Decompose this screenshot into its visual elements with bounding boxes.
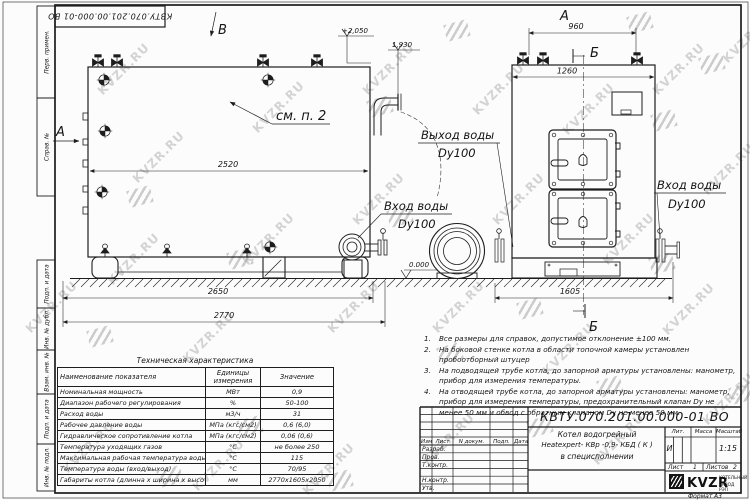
spec-header-value: Значение (261, 368, 334, 387)
section-letter-b-bottom: Б (589, 320, 598, 335)
spec-cell: не более 250 (261, 442, 334, 453)
ground-hatch (72, 279, 665, 287)
product-name-line3: в специсполнении (530, 452, 664, 461)
tb-row-razrab: Разраб. (422, 446, 446, 453)
note-item: 2.На боковой стенке котла в области топо… (424, 345, 740, 365)
note-item: 1.Все размеры для справок, допустимое от… (424, 334, 740, 344)
product-name-line2: Heatexpert- КВр -0,9- КБД ( К ) (530, 441, 664, 449)
view-letter-a-side: А (55, 125, 65, 140)
company-logo-icon (669, 474, 684, 489)
tb-lit-label: Лит. (666, 429, 690, 435)
spec-row: Габариты котла (длинна х ширина х высота… (58, 475, 334, 486)
elev-step: 1,930 (392, 41, 413, 49)
spec-cell: 31 (261, 409, 334, 420)
elev-zero: 0.000 (409, 261, 430, 269)
note-text: Все размеры для справок, допустимое откл… (439, 334, 740, 344)
product-name-line1: Котел водогрейный (530, 430, 664, 439)
tb-sheets-value: 2 (733, 464, 737, 471)
spec-cell: Номинальная мощность (58, 387, 206, 398)
dim-2520: 2520 (218, 160, 238, 169)
spec-cell: м3/ч (206, 409, 261, 420)
tb-sheets-label: Листов (706, 464, 728, 471)
spec-cell: Диапазон рабочего регулирования (58, 398, 206, 409)
spec-cell: 0,6 (6,0) (261, 420, 334, 431)
spec-row: Гидравлическое сопротивление котлаМПа (к… (58, 431, 334, 442)
format-value: А3 (714, 493, 722, 500)
spec-cell: Рабочее давление воды (58, 420, 206, 431)
tb-sheet-value: 1 (693, 464, 697, 471)
water-inlet-side-label: Вход воды (384, 199, 448, 213)
view-letter-b-top: В (218, 23, 227, 38)
door-lower (549, 190, 620, 247)
tb-row-tkontr: Т.контр. (422, 462, 448, 469)
company-name-line2: ЗАВОД РЭП (719, 483, 741, 493)
company-name-line1: КОТЕЛЬНЫЙ (719, 476, 741, 481)
spec-cell: МВт (206, 387, 261, 398)
tb-row-prov: Пров. (422, 454, 439, 461)
spec-row: Расход водым3/ч31 (58, 409, 334, 420)
door-upper (549, 130, 620, 189)
spec-header-row: Наименование показателя Единицы измерени… (58, 368, 334, 387)
tb-row-nkontr: Н.контр. (422, 477, 449, 484)
frame-label: Подп. и дата (45, 264, 51, 304)
dim-2650: 2650 (208, 287, 228, 296)
elev-top: +2,050 (342, 27, 368, 35)
pipe-callouts: Выход воды Dy100 Вход воды Dy100 Вход во… (358, 128, 726, 247)
drawing-sheet: KVZR.RUKVZR.RUKVZR.RUKVZR.RUKVZR.RUKVZR.… (0, 0, 750, 500)
top-stamp-number: КВТУ.070.201.00.000-01 ВО (48, 12, 172, 21)
spec-row: Максимальная рабочая температура воды°С1… (58, 453, 334, 464)
note-text: На боковой стенке котла в области топочн… (439, 345, 740, 365)
water-inlet-front-label: Вход воды (657, 178, 721, 192)
spec-cell: 115 (261, 453, 334, 464)
spec-cell: °С (206, 453, 261, 464)
spec-table: Наименование показателя Единицы измерени… (57, 367, 334, 486)
ground-line (70, 279, 672, 288)
blower-fan (428, 224, 487, 279)
title-block-doc-number: КВТУ.070.201.00.000-01 ВО (530, 409, 739, 424)
spec-cell: 2770х1605х2050 (261, 475, 334, 486)
spec-cell: 0,9 (261, 387, 334, 398)
tb-col-podp: Подп. (491, 439, 512, 445)
note-number: 2. (424, 345, 439, 365)
water-inlet-front-dn: Dy100 (668, 197, 706, 211)
spec-cell: °С (206, 464, 261, 475)
spec-cell: Гидравлическое сопротивление котла (58, 431, 206, 442)
notes-block: 1.Все размеры для справок, допустимое от… (424, 334, 740, 419)
spec-table-title: Техническая характеристика (57, 356, 333, 365)
tb-sheet-label: Лист (668, 464, 683, 471)
front-pipe-left (495, 229, 504, 262)
spec-cell: Температура воды (вход/выход) (58, 464, 206, 475)
tb-col-izm: Изм (421, 439, 432, 445)
spec-header-units: Единицы измерения (206, 368, 261, 387)
tb-col-data: Дата (514, 439, 527, 445)
front-view-dimensions: А 960 Б 1260 1605 Б (495, 9, 673, 335)
spec-table-wrap: Техническая характеристика Наименование … (57, 356, 333, 486)
tb-lit-value: И (666, 444, 673, 453)
water-outlet-label: Выход воды (421, 128, 494, 142)
spec-cell: 70/95 (261, 464, 334, 475)
spec-cell: 50-100 (261, 398, 334, 409)
spec-cell: °С (206, 442, 261, 453)
note-number: 1. (424, 334, 439, 344)
frame-label: Перв. примен. (45, 30, 51, 74)
water-outlet-dn: Dy100 (438, 146, 476, 160)
section-letter-b-top: Б (590, 46, 599, 61)
dim-1260: 1260 (557, 67, 577, 76)
spec-row: Температура воды (вход/выход)°С70/95 (58, 464, 334, 475)
spec-cell: МПа (кгс/см2) (206, 431, 261, 442)
spec-cell: мм (206, 475, 261, 486)
side-view (83, 55, 441, 278)
spec-cell: Максимальная рабочая температура воды (58, 453, 206, 464)
tb-col-list: Лист (433, 439, 452, 445)
tb-row-utv: Утв. (422, 485, 435, 492)
front-view (428, 53, 680, 315)
dim-960: 960 (568, 22, 583, 31)
spec-table-body: Номинальная мощностьМВт0,9Диапазон рабоч… (58, 387, 334, 486)
spec-row: Температура уходящих газов°Сне более 250 (58, 442, 334, 453)
tb-col-dokum: N докум. (454, 439, 489, 445)
see-note-callout: см. п. 2 (276, 109, 326, 124)
notes-list: 1.Все размеры для справок, допустимое от… (424, 334, 740, 418)
spec-cell: Габариты котла (длинна х ширина х высота… (58, 475, 206, 486)
spec-header-name: Наименование показателя (58, 368, 206, 387)
spec-cell: 0,06 (0,6) (261, 431, 334, 442)
frame-label: Инв. № дубл. (45, 309, 51, 349)
frame-label: Подп. и дата (45, 399, 51, 439)
spec-cell: Расход воды (58, 409, 206, 420)
note-number: 3. (424, 366, 439, 386)
note-item: 3.На подводящей трубе котла, до запорной… (424, 366, 740, 386)
tb-scale-label: Масштаб (716, 429, 740, 435)
water-inlet-side-dn: Dy100 (398, 217, 436, 231)
spec-cell: % (206, 398, 261, 409)
frame-label: Справ. № (45, 133, 51, 161)
spec-row: Диапазон рабочего регулирования%50-100 (58, 398, 334, 409)
spec-row: Рабочее давление водыМПа (кгс/см2)0,6 (6… (58, 420, 334, 431)
format-label: Формат (688, 493, 712, 500)
spec-cell: Температура уходящих газов (58, 442, 206, 453)
frame-label: Инв. № подл. (45, 447, 51, 487)
dim-2770: 2770 (214, 311, 234, 320)
frame-label: Взам. инв. № (45, 352, 51, 391)
spec-cell: МПа (кгс/см2) (206, 420, 261, 431)
note-number: 4. (424, 387, 439, 417)
spec-row: Номинальная мощностьМВт0,9 (58, 387, 334, 398)
side-view-dimensions: 2520 2650 2770 А В +2,050 1,930 (53, 12, 438, 327)
dim-1605: 1605 (560, 287, 580, 296)
note-text: На подводящей трубе котла, до запорной а… (439, 366, 740, 386)
tb-scale-value: 1:15 (716, 444, 740, 453)
tb-mass-label: Масса (692, 429, 715, 435)
